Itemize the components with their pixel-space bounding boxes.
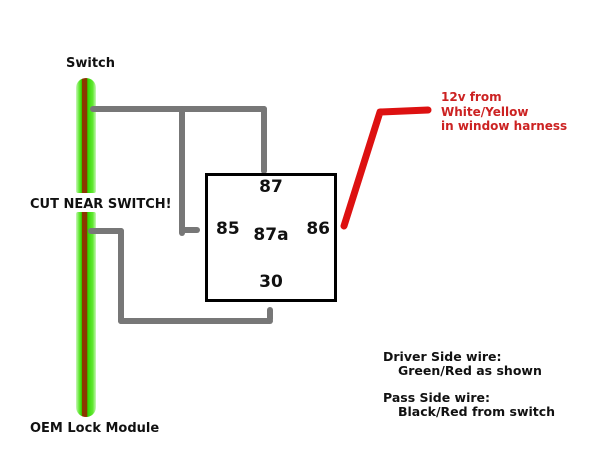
power-source-note-line2: White/Yellow [441, 105, 567, 120]
green-red-wire-lower-segment [76, 212, 96, 417]
gray-wire-to-pin-87 [261, 106, 267, 174]
power-source-note-line3: in window harness [441, 119, 567, 134]
power-source-note-line1: 12v from [441, 90, 567, 105]
power-source-note: 12v from White/Yellow in window harness [441, 90, 567, 134]
red-12v-wire [335, 100, 435, 235]
green-red-wire-upper-segment [76, 78, 96, 193]
wiring-diagram: Switch CUT NEAR SWITCH! OEM Lock Module … [0, 0, 600, 475]
gray-wire-stub-to-pin-85 [179, 227, 200, 233]
cut-near-switch-label: CUT NEAR SWITCH! [30, 197, 172, 212]
relay-box: 87 85 87a 86 30 [205, 173, 337, 302]
gray-wire-branch-vertical [179, 106, 185, 236]
gray-wire-stub-to-pin-30 [267, 307, 273, 322]
oem-lock-module-label: OEM Lock Module [30, 421, 159, 436]
switch-label: Switch [66, 56, 115, 71]
pass-side-note-detail: Black/Red from switch [398, 405, 555, 419]
wire-notes: Driver Side wire: Green/Red as shown Pas… [383, 350, 555, 419]
driver-side-note-detail: Green/Red as shown [398, 364, 555, 378]
gray-wire-bottom-horizontal [118, 318, 273, 324]
relay-pin-87: 87 [208, 177, 334, 197]
pass-side-note-title: Pass Side wire: [383, 391, 555, 405]
gray-wire-lower-vertical [118, 228, 124, 324]
relay-pin-30: 30 [208, 272, 334, 292]
relay-pin-86: 86 [306, 219, 330, 239]
driver-side-note-title: Driver Side wire: [383, 350, 555, 364]
